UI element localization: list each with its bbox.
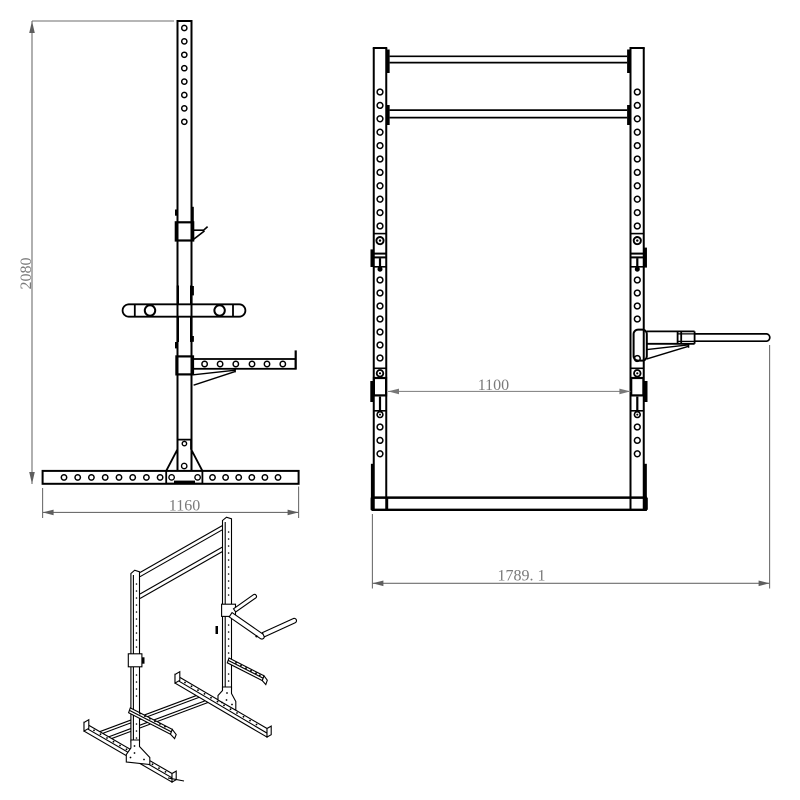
svg-text:1100: 1100 bbox=[478, 377, 509, 394]
svg-text:1789. 1: 1789. 1 bbox=[498, 567, 546, 584]
svg-text:1160: 1160 bbox=[169, 498, 200, 515]
svg-text:2080: 2080 bbox=[18, 258, 35, 290]
